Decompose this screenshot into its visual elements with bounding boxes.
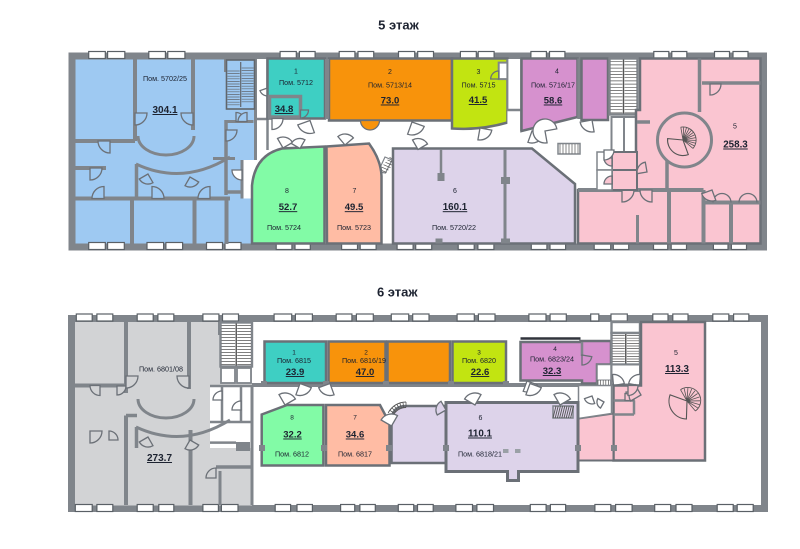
svg-text:Пом. 5712: Пом. 5712 [279,78,313,87]
svg-text:7: 7 [353,415,357,422]
svg-text:41.5: 41.5 [469,95,488,106]
svg-text:73.0: 73.0 [381,96,400,107]
svg-text:Пом. 5720/22: Пом. 5720/22 [432,223,476,232]
svg-text:Пом. 6823/24: Пом. 6823/24 [530,355,574,364]
svg-text:8: 8 [285,188,289,195]
svg-text:Пом. 5713/14: Пом. 5713/14 [368,81,412,90]
svg-text:58.6: 58.6 [544,96,563,107]
svg-text:Пом. 5724: Пом. 5724 [267,223,301,232]
svg-text:110.1: 110.1 [468,429,493,440]
svg-text:113.3: 113.3 [665,364,690,375]
svg-text:22.6: 22.6 [471,367,490,378]
svg-text:6 этаж: 6 этаж [377,285,418,300]
svg-text:Пом. 5702/25: Пом. 5702/25 [143,74,187,83]
svg-text:8: 8 [290,415,294,422]
svg-text:304.1: 304.1 [152,105,177,116]
svg-text:Пом. 6820: Пом. 6820 [462,356,496,365]
svg-text:49.5: 49.5 [345,202,364,213]
svg-text:2: 2 [388,69,392,76]
svg-text:3: 3 [477,69,481,76]
svg-text:32.3: 32.3 [543,366,562,377]
svg-text:4: 4 [553,346,557,353]
svg-text:4: 4 [555,69,559,76]
svg-text:23.9: 23.9 [286,367,305,378]
svg-text:34.8: 34.8 [275,104,294,115]
svg-text:7: 7 [353,188,357,195]
svg-text:5: 5 [674,350,678,357]
svg-text:5: 5 [733,124,737,131]
svg-text:6: 6 [453,188,457,195]
svg-text:Пом. 6817: Пом. 6817 [338,450,372,459]
svg-text:Пом. 6801/08: Пом. 6801/08 [139,365,183,374]
svg-text:273.7: 273.7 [147,453,172,464]
svg-text:52.7: 52.7 [279,202,298,213]
svg-text:Пом. 6816/19: Пом. 6816/19 [342,356,386,365]
svg-text:Пом. 6815: Пом. 6815 [277,356,311,365]
svg-text:32.2: 32.2 [283,430,302,441]
svg-text:258.3: 258.3 [723,140,748,151]
svg-text:Пом. 5715: Пом. 5715 [461,81,495,90]
svg-text:Пом. 5716/17: Пом. 5716/17 [531,81,575,90]
svg-text:Пом. 5723: Пом. 5723 [337,223,371,232]
svg-text:34.6: 34.6 [346,430,365,441]
svg-text:1: 1 [294,69,298,76]
svg-text:Пом. 6818/21: Пом. 6818/21 [458,450,502,459]
svg-text:160.1: 160.1 [443,202,468,213]
svg-text:47.0: 47.0 [356,367,375,378]
svg-text:6: 6 [479,415,483,422]
svg-text:Пом. 6812: Пом. 6812 [275,450,309,459]
svg-text:5 этаж: 5 этаж [378,18,419,33]
